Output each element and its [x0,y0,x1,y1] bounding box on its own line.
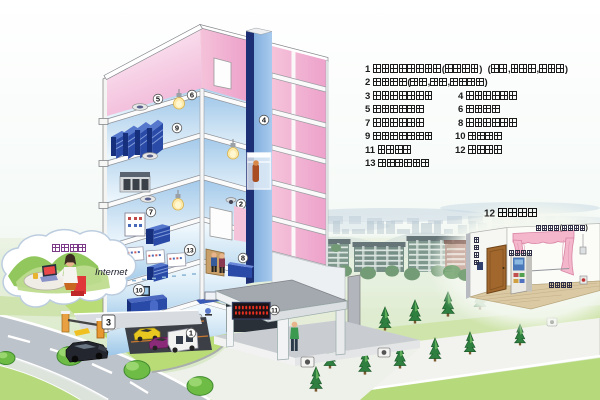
svg-text:2: 2 [239,199,243,208]
svg-text:3: 3 [106,318,111,328]
svg-text:13: 13 [186,247,194,254]
svg-text:8: 8 [241,253,245,262]
svg-text:7: 7 [149,207,153,216]
svg-text:10: 10 [135,287,143,294]
svg-text:5: 5 [156,94,160,103]
svg-text:9: 9 [175,123,179,132]
svg-text:11: 11 [271,307,278,314]
svg-text:6: 6 [190,90,194,99]
svg-text:1: 1 [189,328,193,337]
